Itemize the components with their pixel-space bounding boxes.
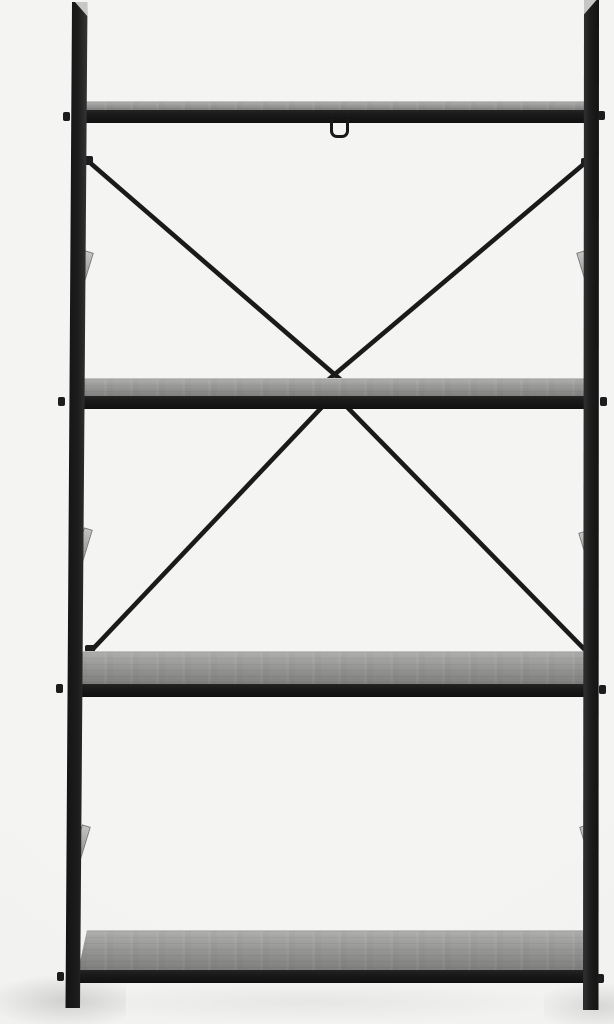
shelf-wood-panel <box>78 930 592 971</box>
post-top-bevel <box>75 2 88 17</box>
shelf-wood-panel <box>78 651 592 685</box>
brace-wire-lower-left <box>90 407 322 652</box>
product-photo <box>0 0 614 1024</box>
shelf-metal-rail <box>78 970 592 983</box>
bolt-stub <box>57 972 64 981</box>
bolt-stub <box>597 974 604 983</box>
x-cross-brace <box>0 0 614 1024</box>
bolt-stub <box>56 684 63 693</box>
right-post <box>582 0 601 1010</box>
brace-wire-upper-left <box>88 161 341 380</box>
bolt-stub <box>63 112 70 121</box>
brace-wire-lower-right <box>347 407 588 653</box>
shelf-wood-panel <box>78 378 592 397</box>
bolt-stub <box>599 685 606 694</box>
shelf-metal-rail <box>78 684 592 697</box>
bolt-stub <box>598 111 605 120</box>
bolt-stub <box>600 397 607 406</box>
shelf-metal-rail <box>78 396 592 409</box>
brace-wire-upper-right <box>328 163 585 380</box>
hanging-hook <box>330 119 349 138</box>
bolt-stub <box>58 397 65 406</box>
post-top-bevel <box>584 0 597 15</box>
